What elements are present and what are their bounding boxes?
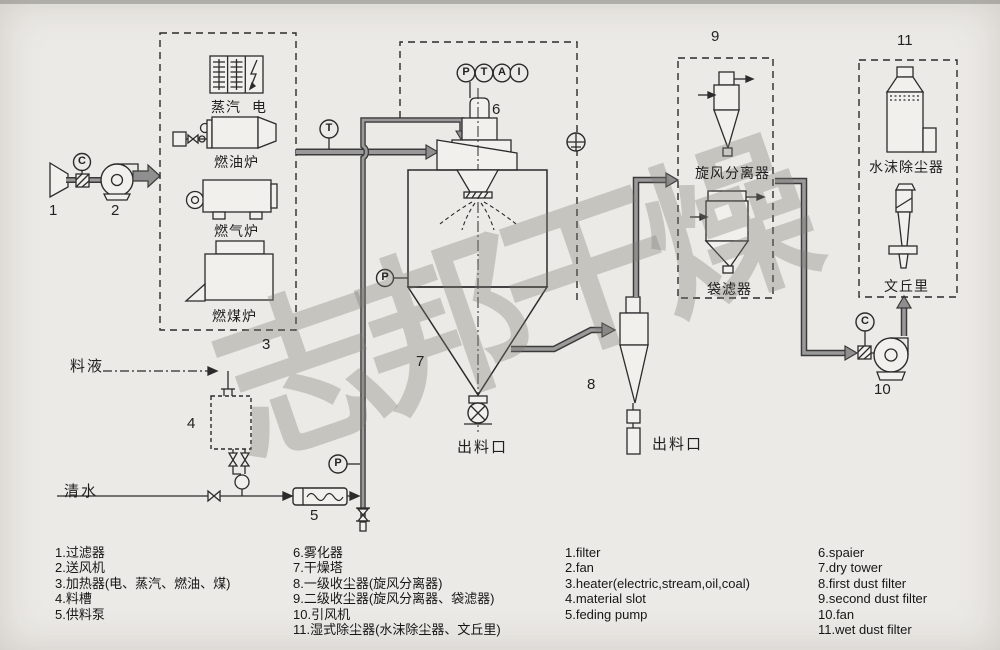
legend-line: 5.feding pump [565,607,750,622]
bag-filter-label: 袋滤器 [707,279,752,299]
legend-line: 4.料槽 [55,591,231,606]
intake-c-gauge-label: C [73,155,91,167]
gas-furnace-icon [187,180,278,219]
gas-furnace-label: 燃气炉 [214,221,259,241]
legend-line: 8.first dust filter [818,576,927,591]
duct-t-gauge-label: T [320,122,338,134]
feed-liquid-line [103,367,235,396]
legend-line: 11.湿式除尘器(水沫除尘器、文丘里) [293,622,501,637]
oil-furnace-label: 燃油炉 [214,152,259,172]
gauge-t-label: T [475,66,493,78]
legend-line: 7.干燥塔 [293,560,501,575]
tower-p-gauge-label: P [376,271,394,283]
cyclone8-exhaust-duct [636,173,678,297]
item-number-6: 6 [492,101,500,118]
cyclone-discharge-label: 出料口 [652,433,703,454]
fan-outlet-arrow [133,165,160,187]
legend-line: 4.material slot [565,591,750,606]
legend-line: 3.加热器(电、蒸汽、燃油、煤) [55,576,231,591]
item-number-10: 10 [874,381,891,398]
tower-discharge-valve-icon [464,396,492,424]
legend-line: 1.过滤器 [55,545,231,560]
item-number-11: 11 [897,32,913,49]
steam-electric-heater-icon [210,56,263,93]
legend-line: 11.wet dust filter [818,622,927,637]
item-number-1: 1 [49,202,57,219]
item-number-8: 8 [587,376,595,393]
gauge-p-label: P [457,66,475,78]
oil-furnace-icon [173,117,276,148]
feed-liquid-label: 料液 [70,355,104,376]
legend-line: 10.引风机 [293,607,501,622]
legend-en-col2: 6.spaier 7.dry tower 8.first dust filter… [818,545,927,637]
legend-line: 1.filter [565,545,750,560]
intake-fan-icon [101,164,138,200]
bag-filter-icon [690,191,764,273]
pipe-p-gauge-label: P [329,457,347,469]
legend-line: 7.dry tower [818,560,927,575]
item-number-3: 3 [262,336,270,353]
item-number-9: 9 [711,28,719,45]
cyclone-separator-label: 旋风分离器 [695,163,770,183]
flow-diagram-page: 志邦干燥 [0,0,1000,650]
item-number-2: 2 [111,202,119,219]
air-filter-icon [50,163,68,197]
item-number-4: 4 [187,415,195,432]
legend-line: 10.fan [818,607,927,622]
gauge-i-label: I [510,66,528,78]
gauge-a-label: A [493,66,511,78]
item-number-5: 5 [310,507,318,524]
clean-water-label: 清水 [64,480,98,501]
electric-label: 电 [252,97,267,117]
cyclone-8-icon [620,297,648,454]
legend-line: 2.送风机 [55,560,231,575]
exhaust-fan-icon [874,338,908,380]
coal-furnace-label: 燃煤炉 [212,306,257,326]
legend-zh-col2: 6.雾化器 7.干燥塔 8.一级收尘器(旋风分离器) 9.二级收尘器(旋风分离器… [293,545,501,637]
legend-line: 2.fan [565,560,750,575]
fan10-outlet-duct [897,296,911,336]
steam-label: 蒸汽 [211,97,241,117]
feed-pipe [363,120,468,522]
vent-symbol-icon [567,133,585,151]
box9-outlet-duct [775,181,857,360]
cyclone-separator-icon [698,72,753,156]
legend-line: 8.一级收尘器(旋风分离器) [293,576,501,591]
pipe-drain-valve-icon [356,508,370,531]
legend-line: 5.供料泵 [55,607,231,622]
venturi-label: 文丘里 [884,276,929,296]
legend-line: 9.second dust filter [818,591,927,606]
coal-furnace-icon [186,241,273,301]
legend-line: 9.二级收尘器(旋风分离器、袋滤器) [293,591,501,606]
legend-line: 6.spaier [818,545,927,560]
tower-discharge-label: 出料口 [457,436,508,457]
tower-outlet-duct [511,323,615,349]
item-number-7: 7 [416,353,424,370]
water-mist-remover-label: 水沫除尘器 [869,157,944,177]
legend-line: 3.heater(electric,stream,oil,coal) [565,576,750,591]
legend-line: 6.雾化器 [293,545,501,560]
water-mist-remover-icon [887,67,936,152]
feed-pump-icon [293,488,359,505]
legend-en-col1: 1.filter 2.fan 3.heater(electric,stream,… [565,545,750,622]
fan-c-gauge-label: C [856,315,874,327]
legend-zh-col1: 1.过滤器 2.送风机 3.加热器(电、蒸汽、燃油、煤) 4.料槽 5.供料泵 [55,545,231,622]
venturi-icon [889,184,917,268]
feed-tank-icon [211,396,251,496]
